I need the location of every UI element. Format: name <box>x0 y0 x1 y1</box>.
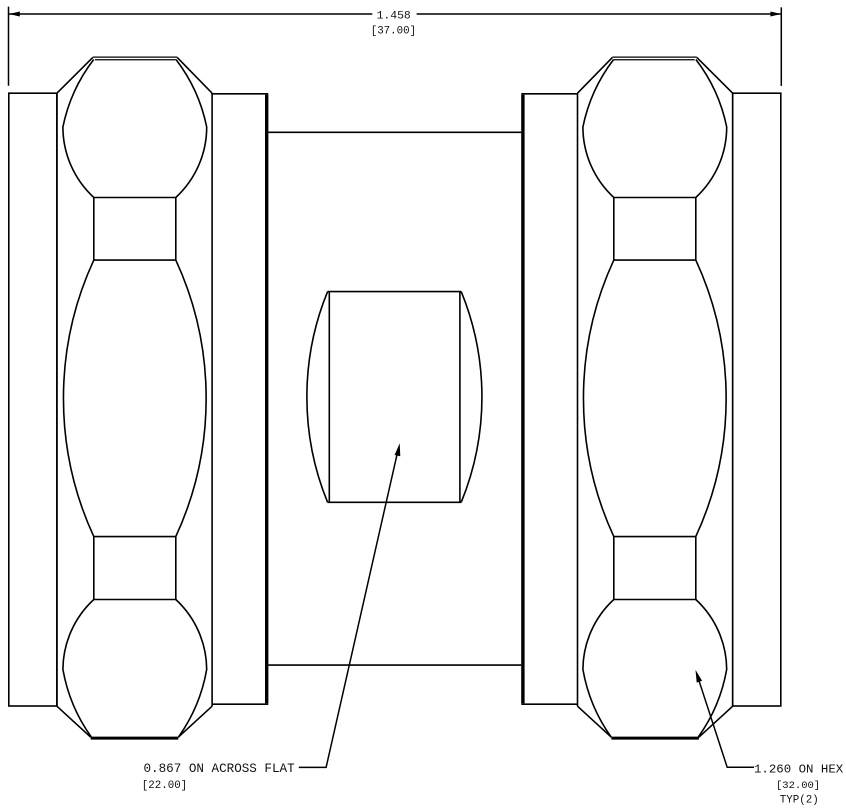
svg-text:1.260 ON HEX: 1.260 ON HEX <box>754 762 844 776</box>
svg-text:[22.00]: [22.00] <box>142 780 187 792</box>
svg-text:1.458: 1.458 <box>377 10 411 22</box>
svg-text:TYP(2): TYP(2) <box>780 795 819 807</box>
svg-text:[37.00]: [37.00] <box>371 26 416 38</box>
svg-text:[32.00]: [32.00] <box>776 780 820 792</box>
svg-text:0.867 ON ACROSS FLAT: 0.867 ON ACROSS FLAT <box>144 762 296 776</box>
